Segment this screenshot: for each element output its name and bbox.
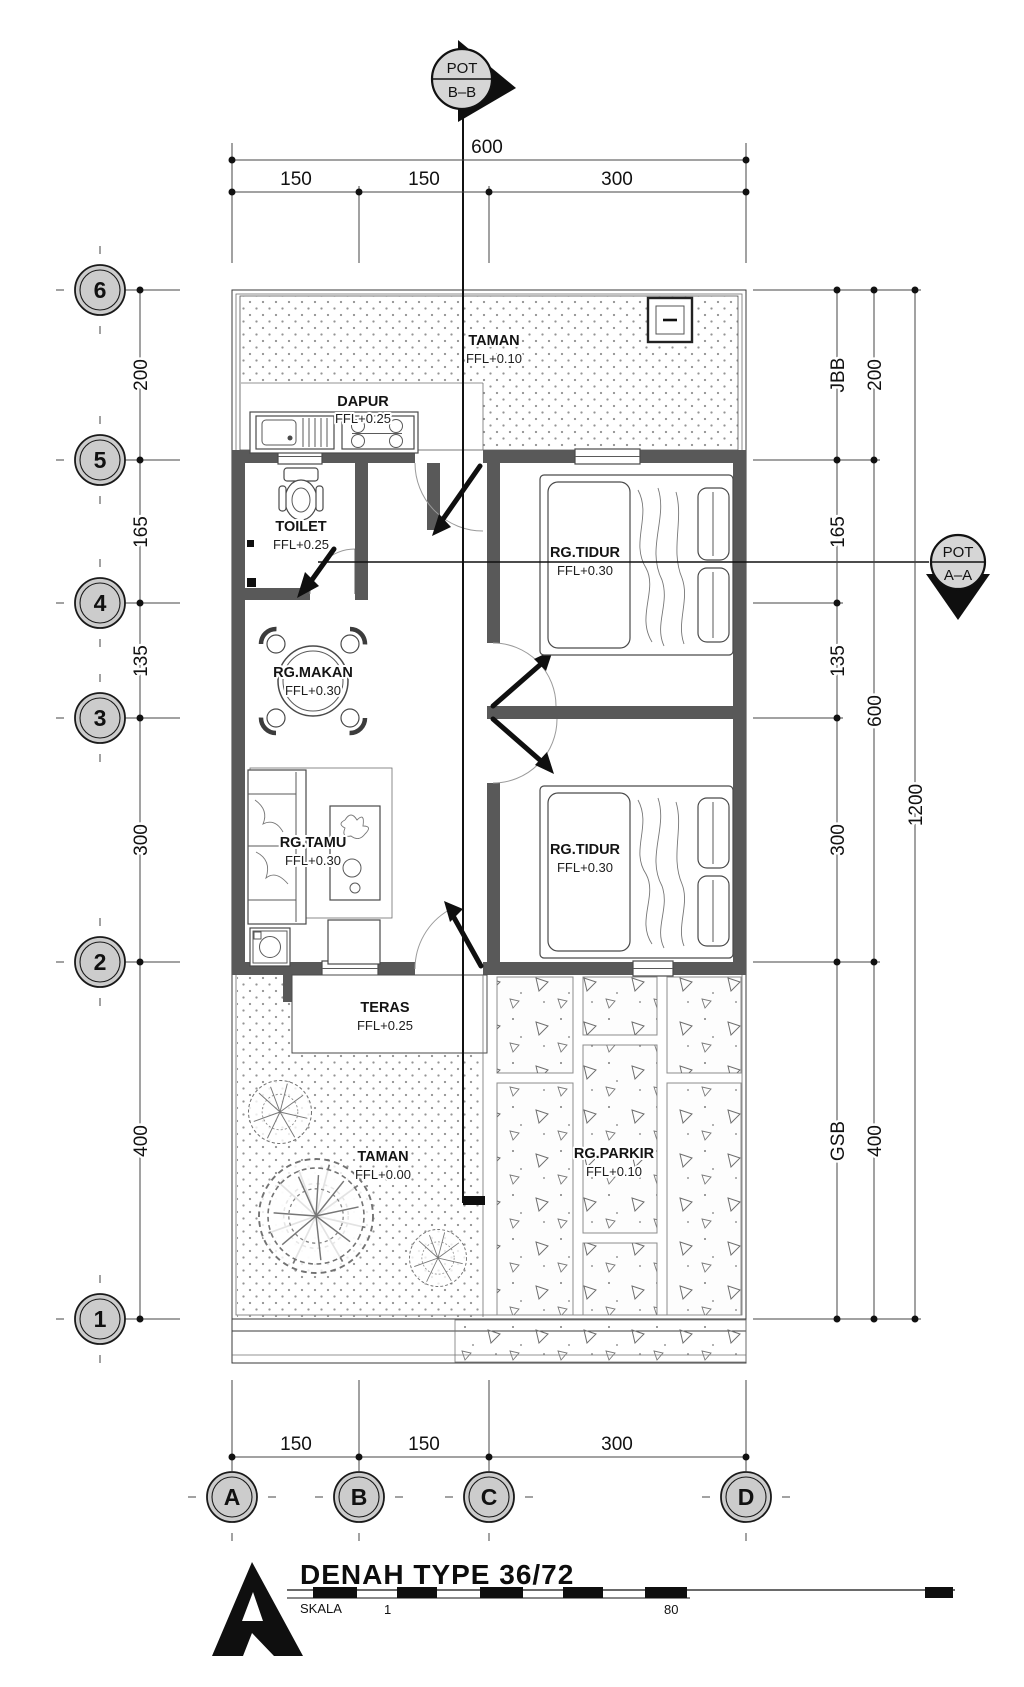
chair-icon xyxy=(261,629,291,659)
dim-right-middle-2: 400 xyxy=(865,1125,886,1157)
dim-top-1: 150 xyxy=(408,169,440,190)
dim-right-inner-4: GSB xyxy=(828,1121,849,1161)
room-toilet-ffl: FFL+0.25 xyxy=(273,537,329,552)
grid-col-label: B xyxy=(351,1484,368,1510)
paving-slab xyxy=(583,1243,657,1315)
grid-bubble-C: C xyxy=(445,1472,533,1541)
dim-right-middle-0: 200 xyxy=(865,359,886,391)
room-tidur1: RG.TIDUR xyxy=(550,545,621,561)
dining-set xyxy=(261,629,365,733)
tree-icon xyxy=(249,1081,312,1144)
dim-right-inner-2: 135 xyxy=(828,645,849,677)
grid-bubble-6: 6 xyxy=(56,246,125,334)
title-block: DENAH TYPE 36/72 SKALA 1 80 xyxy=(212,1559,955,1656)
grid-bubble-A: A xyxy=(188,1472,276,1541)
entry-door xyxy=(415,463,483,536)
room-taman-front: TAMAN xyxy=(357,1149,408,1165)
scale-from: 1 xyxy=(384,1602,391,1617)
grid-row-label: 3 xyxy=(94,705,107,731)
paving-slab xyxy=(497,1083,573,1315)
dim-bottom-2: 300 xyxy=(601,1434,633,1455)
grid-col-label: A xyxy=(224,1484,241,1510)
room-makan-ffl: FFL+0.30 xyxy=(285,683,341,698)
dimensions-right: JBB 165 135 300 GSB 200 600 400 1200 xyxy=(753,287,927,1323)
dim-right-overall: 1200 xyxy=(906,784,927,826)
room-dapur: DAPUR xyxy=(337,394,389,410)
chair-icon xyxy=(335,703,365,733)
room-tamu: RG.TAMU xyxy=(280,835,347,851)
utility-box-icon xyxy=(648,298,692,342)
grid-row-label: 1 xyxy=(94,1306,107,1332)
grid-bubble-1: 1 xyxy=(56,1275,125,1363)
room-teras: TERAS xyxy=(360,1000,409,1016)
paving-slab xyxy=(497,977,573,1073)
room-teras-ffl: FFL+0.25 xyxy=(357,1018,413,1033)
section-aa-tag: POT xyxy=(943,544,974,561)
grid-row-label: 2 xyxy=(94,949,107,975)
grid-row-label: 5 xyxy=(94,447,107,473)
dim-right-middle-1: 600 xyxy=(865,695,886,727)
paving-slab xyxy=(667,977,741,1073)
dim-top-2: 300 xyxy=(601,169,633,190)
grid-col-label: D xyxy=(738,1484,755,1510)
sidewalk xyxy=(232,1319,746,1363)
window-bedroom2 xyxy=(633,961,673,976)
room-parkir-ffl: FFL+0.10 xyxy=(586,1164,642,1179)
dim-left-0: 200 xyxy=(131,359,152,391)
drafting-arrow-icon xyxy=(212,1562,303,1656)
side-table-icon xyxy=(328,920,380,964)
room-dapur-ffl: FFL+0.25 xyxy=(335,411,391,426)
dimensions-left: 200 165 135 300 400 6 5 4 3 2 1 xyxy=(56,246,180,1363)
room-tidur2: RG.TIDUR xyxy=(550,842,621,858)
dim-left-3: 300 xyxy=(131,824,152,856)
dim-right-inner-0: JBB xyxy=(828,358,849,393)
drawing-title: DENAH TYPE 36/72 xyxy=(300,1559,574,1590)
paving-slab xyxy=(667,1083,741,1315)
dim-right-inner-1: 165 xyxy=(828,516,849,548)
grid-bubble-D: D xyxy=(702,1472,790,1541)
room-tamu-ffl: FFL+0.30 xyxy=(285,853,341,868)
dim-top-0: 150 xyxy=(280,169,312,190)
dim-left-4: 400 xyxy=(131,1125,152,1157)
grid-bubble-3: 3 xyxy=(56,674,125,762)
dim-bottom-0: 150 xyxy=(280,1434,312,1455)
floor-plan-drawing: POT B–B POT A–A TAMAN FFL+0.10 DAPUR FFL… xyxy=(0,0,1024,1687)
room-taman-front-ffl: FFL+0.00 xyxy=(355,1167,411,1182)
grid-bubble-2: 2 xyxy=(56,918,125,1006)
room-taman-back-ffl: FFL+0.10 xyxy=(466,351,522,366)
dim-top-total: 600 xyxy=(471,137,503,158)
row-extension-lines xyxy=(125,290,180,1319)
washing-machine-icon xyxy=(250,928,290,966)
grid-bubble-B: B xyxy=(315,1472,403,1541)
toilet-fixture xyxy=(279,468,323,520)
tree-icon xyxy=(410,1230,467,1287)
scale-label: SKALA xyxy=(300,1601,342,1616)
window-bedroom1 xyxy=(575,449,640,464)
paving-slab xyxy=(583,1045,657,1233)
scale-to: 80 xyxy=(664,1602,678,1617)
teras-door xyxy=(415,901,481,969)
section-bb-tag: POT xyxy=(447,60,478,77)
grid-bubble-5: 5 xyxy=(56,416,125,504)
section-aa-label: A–A xyxy=(944,567,972,584)
grid-col-label: C xyxy=(481,1484,498,1510)
chair-icon xyxy=(261,703,291,733)
grid-row-label: 6 xyxy=(94,277,107,303)
dim-left-2: 135 xyxy=(131,645,152,677)
grid-row-label: 4 xyxy=(94,590,107,616)
room-tidur2-ffl: FFL+0.30 xyxy=(557,860,613,875)
section-bb-label: B–B xyxy=(448,84,476,101)
room-toilet: TOILET xyxy=(275,519,326,535)
room-taman-back: TAMAN xyxy=(468,333,519,349)
paving-slab xyxy=(583,977,657,1035)
dim-left-1: 165 xyxy=(131,516,152,548)
room-makan: RG.MAKAN xyxy=(273,665,353,681)
sink-icon xyxy=(256,416,334,449)
room-tidur1-ffl: FFL+0.30 xyxy=(557,563,613,578)
chair-icon xyxy=(335,629,365,659)
dimensions-bottom: 150 150 300 A B C D xyxy=(188,1380,790,1541)
bedroom2-door xyxy=(493,719,557,783)
grid-bubble-4: 4 xyxy=(56,559,125,647)
dim-right-inner-3: 300 xyxy=(828,824,849,856)
dim-bottom-1: 150 xyxy=(408,1434,440,1455)
dimensions-top: 600 150 150 300 xyxy=(229,137,750,263)
room-parkir: RG.PARKIR xyxy=(574,1146,655,1162)
